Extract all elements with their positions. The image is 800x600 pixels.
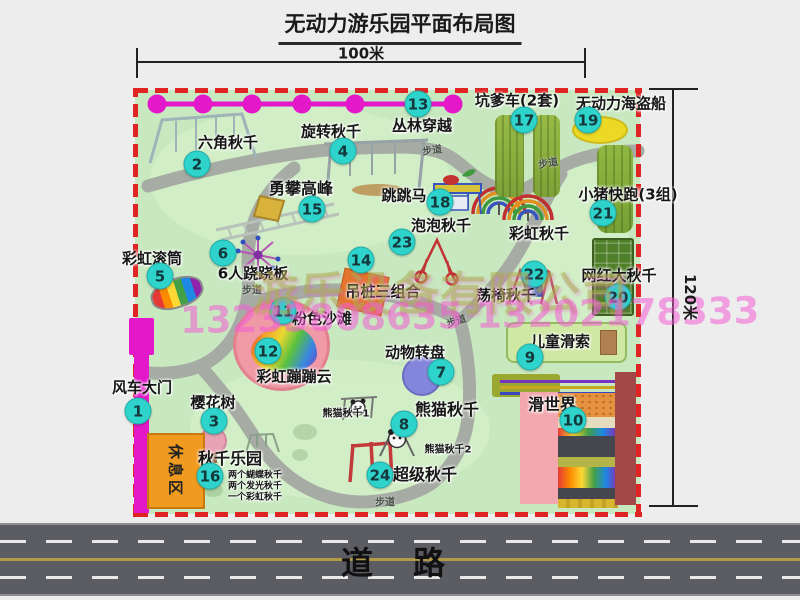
park-border-top xyxy=(135,88,642,93)
label-climbing-peak: 勇攀高峰 xyxy=(269,175,333,199)
label-super-swing: 超级秋千 xyxy=(393,461,457,485)
zipline-cable-purple xyxy=(500,380,620,383)
slide-world-wall xyxy=(615,372,636,505)
marker-24: 24 xyxy=(367,462,394,489)
road: 道 路 xyxy=(0,523,800,596)
marker-9: 9 xyxy=(517,344,544,371)
windmill-gate-icon xyxy=(129,318,154,355)
label-jump-horse: 跳跳马 xyxy=(381,185,426,206)
label-panda-swing-2: 熊猫秋千2 xyxy=(425,441,472,456)
rest-area-label: 休息区 xyxy=(166,444,187,498)
marker-8: 8 xyxy=(391,411,418,438)
slide-world-band-wave xyxy=(558,499,618,508)
marker-15: 15 xyxy=(299,196,326,223)
zipline-cable-gold xyxy=(500,386,620,389)
page-title: 无动力游乐园平面布局图 xyxy=(279,8,522,45)
label-rotating-swing: 旋转秋千 xyxy=(301,121,361,142)
slide-world-band-dark-2 xyxy=(558,488,618,499)
marker-6: 6 xyxy=(210,240,237,267)
label-panda-swing: 熊猫秋千 xyxy=(415,396,479,420)
marker-12: 12 xyxy=(255,338,282,365)
trail-label-1: 步道 xyxy=(421,140,443,158)
marker-7: 7 xyxy=(428,359,455,386)
marker-1: 1 xyxy=(125,398,152,425)
dimension-height-label: 120米 xyxy=(680,274,701,320)
label-jungle-crossing: 丛林穿越 xyxy=(392,115,452,136)
label-panda-swing-1: 熊猫秋千1 xyxy=(323,405,370,420)
marker-23: 23 xyxy=(389,229,416,256)
park-border-bottom xyxy=(135,512,642,517)
marker-10: 10 xyxy=(560,407,587,434)
dimension-width-label: 100米 xyxy=(338,43,384,64)
marker-21: 21 xyxy=(590,200,617,227)
marker-16: 16 xyxy=(197,463,224,490)
trail-label-5: 步道 xyxy=(375,494,395,509)
road-label: 道 路 xyxy=(341,538,449,584)
slide-world-band-olive xyxy=(558,457,618,467)
marker-5: 5 xyxy=(147,263,174,290)
label-windmill-gate: 风车大门 xyxy=(112,377,172,398)
swing-park-item-3: 一个彩虹秋千 xyxy=(228,490,282,503)
park-layout-page: 休息区 风车大门 1 六角秋千 2 樱花树 3 旋转秋千 4 彩虹滚筒 5 6人… xyxy=(0,0,800,600)
slide-world-band-rainbow-2 xyxy=(558,467,618,488)
marker-2: 2 xyxy=(184,151,211,178)
label-piggy-run: 小猪快跑(3组) xyxy=(578,184,677,205)
marker-4: 4 xyxy=(330,138,357,165)
label-hexagon-swing: 六角秋千 xyxy=(198,132,258,153)
label-bubble-swing: 泡泡秋千 xyxy=(411,215,471,236)
marker-3: 3 xyxy=(201,408,228,435)
marker-17: 17 xyxy=(511,107,538,134)
label-rainbow-swing: 彩虹秋千 xyxy=(509,223,569,244)
marker-13: 13 xyxy=(405,91,432,118)
label-rainbow-cloud: 彩虹蹦蹦云 xyxy=(256,366,331,387)
marker-18: 18 xyxy=(427,189,454,216)
marker-19: 19 xyxy=(575,107,602,134)
slide-world-band-dark-1 xyxy=(558,436,618,457)
